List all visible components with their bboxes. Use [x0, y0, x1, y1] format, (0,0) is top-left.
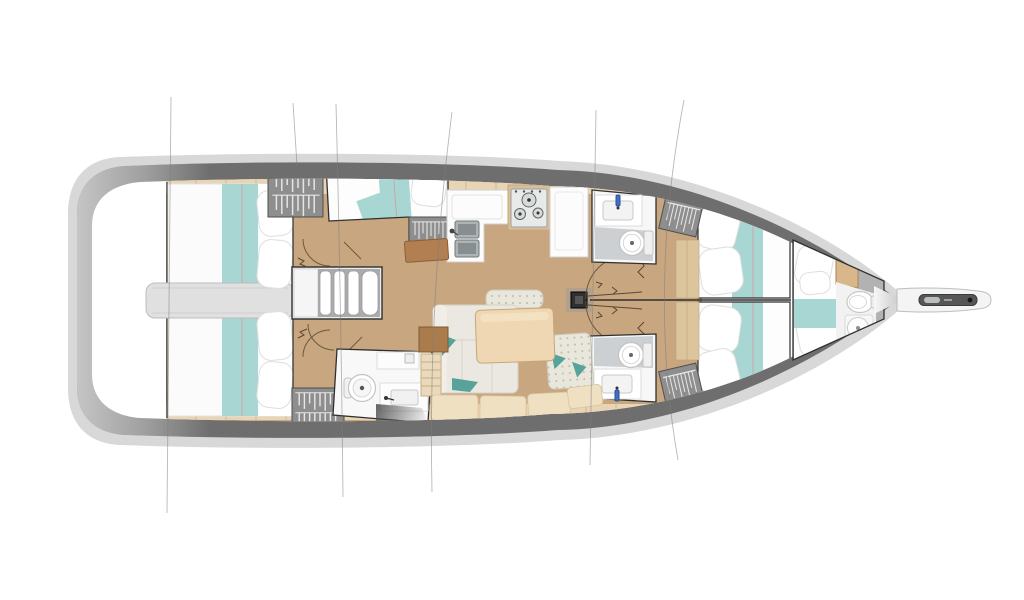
galley-stove-3-burner	[511, 189, 547, 227]
port-head	[592, 190, 656, 264]
side-cabinet	[404, 238, 448, 262]
yacht-floorplan	[0, 0, 1024, 600]
galley-counter	[550, 187, 588, 257]
toilet	[619, 343, 653, 368]
slatted-cabinet	[421, 354, 441, 396]
floorplan-canvas	[0, 0, 1024, 600]
bowsprit	[897, 288, 991, 312]
faucet	[615, 390, 619, 401]
toilet	[620, 231, 654, 256]
toilet	[344, 375, 376, 402]
companionway-stairs	[292, 267, 382, 319]
saloon-table	[475, 308, 555, 364]
faucet	[616, 195, 620, 206]
